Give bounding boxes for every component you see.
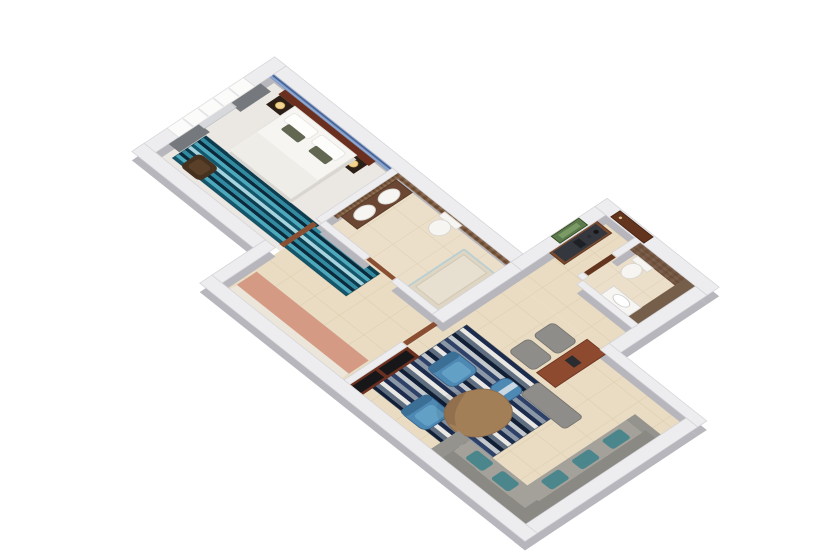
floorplan-canvas	[0, 0, 820, 560]
floorplan-render	[0, 0, 820, 560]
furniture-layer	[94, 18, 781, 529]
